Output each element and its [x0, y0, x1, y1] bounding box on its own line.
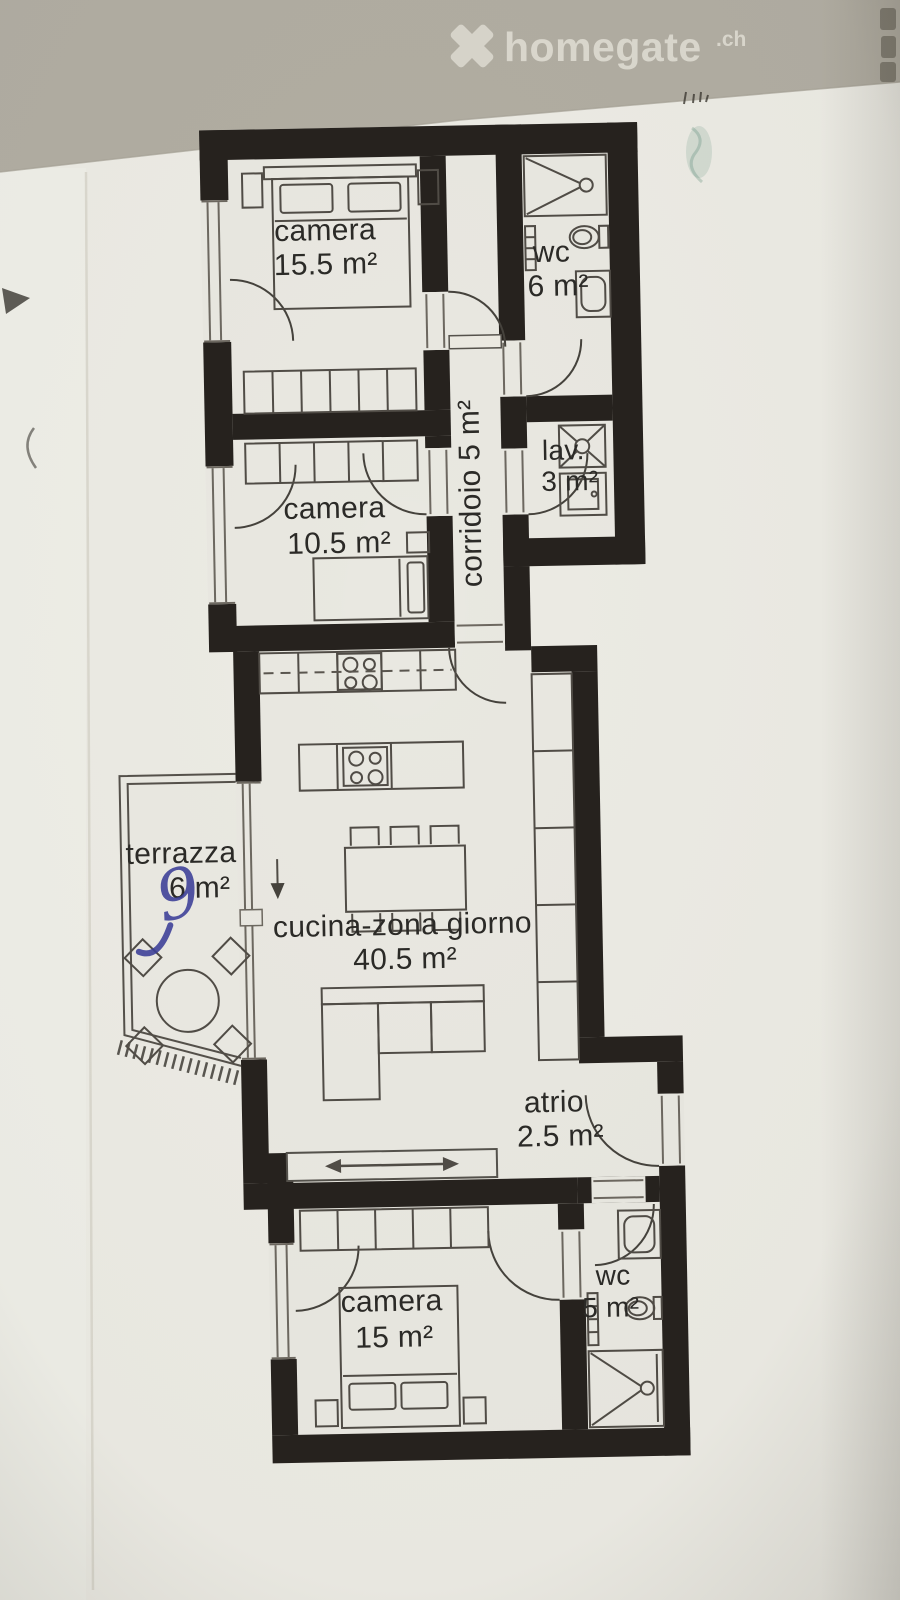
photo-vignette: [0, 0, 900, 1600]
floorplan-svg: homegate .ch: [0, 0, 900, 1600]
floorplan-photo: homegate .ch: [0, 0, 900, 1600]
photo-edge-shade: [820, 0, 900, 1600]
